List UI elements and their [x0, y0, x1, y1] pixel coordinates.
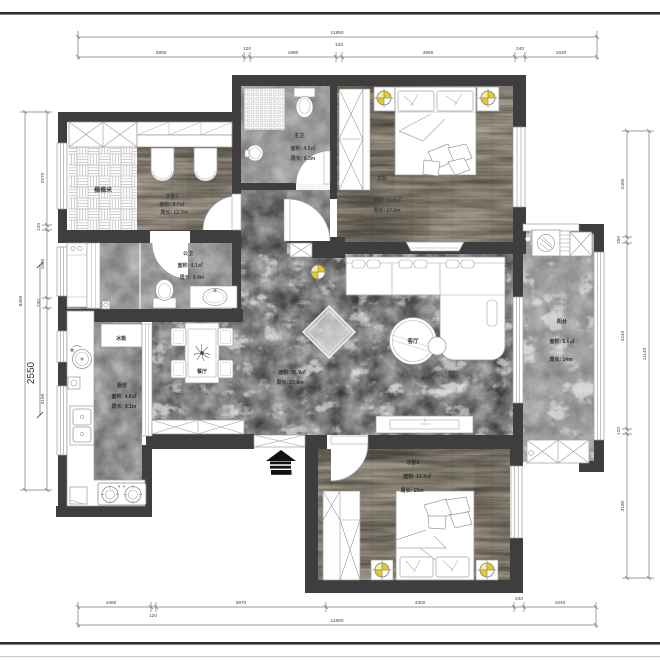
svg-text:150: 150: [616, 236, 622, 244]
svg-text:厨房: 厨房: [117, 382, 127, 389]
svg-text:11140: 11140: [642, 347, 648, 360]
svg-text:面积: 4.8㎡: 面积: 4.8㎡: [111, 393, 136, 400]
svg-text:230: 230: [36, 299, 42, 307]
svg-text:面积: 4.1㎡: 面积: 4.1㎡: [177, 262, 202, 269]
svg-text:周长: 14m: 周长: 14m: [549, 356, 573, 363]
svg-text:3180: 3180: [620, 500, 626, 511]
svg-text:榻榻米: 榻榻米: [93, 186, 112, 194]
svg-text:客厅: 客厅: [406, 337, 419, 345]
svg-text:周长: 27.6m: 周长: 27.6m: [276, 379, 304, 386]
svg-text:4240: 4240: [620, 330, 626, 341]
svg-text:周长: 8.3m: 周长: 8.3m: [291, 155, 316, 162]
svg-text:3870: 3870: [236, 600, 247, 606]
svg-text:4160: 4160: [40, 393, 46, 404]
svg-text:8460: 8460: [18, 295, 24, 306]
svg-text:4300: 4300: [415, 600, 426, 606]
svg-text:周长: 12.7m: 周长: 12.7m: [160, 209, 188, 216]
svg-text:面积: 13.3㎡: 面积: 13.3㎡: [403, 473, 431, 480]
svg-text:120: 120: [36, 223, 42, 231]
svg-text:240: 240: [516, 46, 524, 52]
svg-text:面积: 9.7㎡: 面积: 9.7㎡: [159, 201, 184, 208]
svg-text:11850: 11850: [331, 30, 344, 36]
svg-text:周长: 9.1m: 周长: 9.1m: [112, 403, 137, 410]
svg-text:主卧: 主卧: [377, 175, 387, 182]
svg-text:面积: 4.5㎡: 面积: 4.5㎡: [290, 145, 315, 152]
svg-text:次卧1: 次卧1: [166, 193, 179, 200]
svg-text:周长: 15m: 周长: 15m: [400, 487, 424, 494]
svg-text:3950: 3950: [423, 50, 434, 56]
svg-text:2570: 2570: [40, 172, 46, 183]
svg-text:阳台: 阳台: [557, 318, 567, 325]
svg-text:周长: 17.0m: 周长: 17.0m: [373, 207, 401, 214]
svg-text:11850: 11850: [331, 618, 344, 624]
svg-text:1980: 1980: [288, 50, 299, 56]
svg-text:1640: 1640: [555, 600, 566, 606]
svg-text:120: 120: [149, 613, 157, 619]
svg-text:120: 120: [335, 42, 343, 48]
svg-text:240: 240: [515, 596, 523, 602]
svg-text:120: 120: [243, 46, 251, 52]
svg-text:主卫: 主卫: [294, 132, 304, 139]
svg-text:120: 120: [616, 427, 622, 435]
svg-text:次卧2: 次卧2: [407, 459, 420, 466]
svg-text:1640: 1640: [556, 50, 567, 56]
svg-text:餐厅: 餐厅: [196, 368, 207, 375]
svg-text:1660: 1660: [106, 600, 117, 606]
svg-text:面积: 36.9㎡: 面积: 36.9㎡: [278, 369, 306, 376]
svg-text:3800: 3800: [156, 50, 167, 56]
svg-text:面积: 5.6㎡: 面积: 5.6㎡: [549, 338, 574, 345]
svg-text:公卫: 公卫: [183, 250, 193, 257]
svg-text:冰箱: 冰箱: [116, 335, 126, 342]
svg-text:面积: 15.8㎡: 面积: 15.8㎡: [373, 197, 401, 204]
svg-text:周长: 9.4m: 周长: 9.4m: [180, 274, 205, 281]
svg-text:2450: 2450: [620, 178, 626, 189]
svg-text:2550: 2550: [26, 361, 37, 384]
